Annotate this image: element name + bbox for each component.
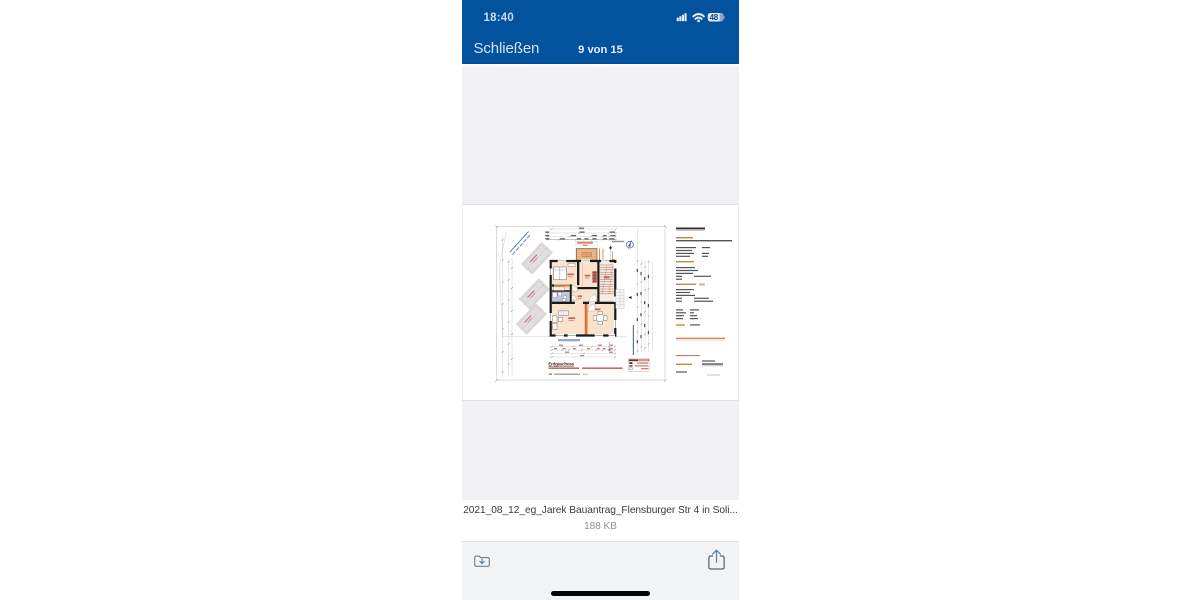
svg-text:Erdgeschoss: Erdgeschoss: [548, 361, 574, 366]
svg-text:48: 48: [710, 13, 719, 22]
